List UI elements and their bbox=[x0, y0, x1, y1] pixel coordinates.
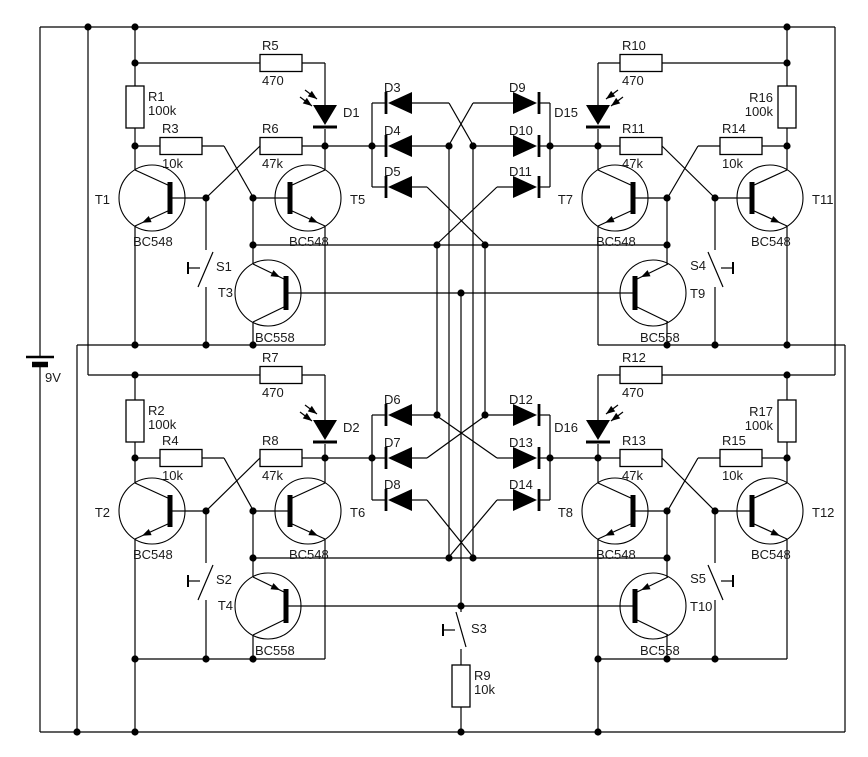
diode-label: D3 bbox=[384, 80, 401, 95]
switch-label: S4 bbox=[690, 258, 706, 273]
resistor bbox=[778, 400, 796, 442]
transistor-part-label: BC558 bbox=[640, 330, 680, 345]
junction-dot bbox=[663, 554, 670, 561]
junction-dot bbox=[546, 454, 553, 461]
junction-dot bbox=[249, 507, 256, 514]
junction-dot bbox=[321, 454, 328, 461]
junction-dot bbox=[131, 371, 138, 378]
junction-dot bbox=[445, 554, 452, 561]
junction-dot bbox=[73, 728, 80, 735]
transistor-part-label: BC548 bbox=[289, 234, 329, 249]
resistor-ref-label: R13 bbox=[622, 433, 646, 448]
junction-dot bbox=[481, 411, 488, 418]
diode-label: D8 bbox=[384, 477, 401, 492]
diode-label: D14 bbox=[509, 477, 533, 492]
junction-dot bbox=[594, 454, 601, 461]
junction-dot bbox=[594, 142, 601, 149]
resistor-ref-label: R11 bbox=[622, 121, 645, 136]
resistor-ref-label: R6 bbox=[262, 121, 279, 136]
transistor-ref-label: T9 bbox=[690, 286, 705, 301]
resistor-ref-label: R1 bbox=[148, 89, 165, 104]
resistor bbox=[260, 55, 302, 72]
resistor bbox=[260, 367, 302, 384]
junction-dot bbox=[202, 507, 209, 514]
transistor-ref-label: T12 bbox=[812, 505, 834, 520]
junction-dot bbox=[711, 507, 718, 514]
junction-dot bbox=[457, 728, 464, 735]
resistor-ref-label: R2 bbox=[148, 403, 165, 418]
junction-dot bbox=[663, 507, 670, 514]
diode-label: D12 bbox=[509, 392, 533, 407]
junction-dot bbox=[202, 655, 209, 662]
transistor-part-label: BC558 bbox=[640, 643, 680, 658]
junction-dot bbox=[131, 142, 138, 149]
resistor bbox=[720, 450, 762, 467]
diode-label: D4 bbox=[384, 123, 401, 138]
led-label: D16 bbox=[554, 420, 578, 435]
resistor-ref-label: R12 bbox=[622, 350, 646, 365]
transistor-ref-label: T6 bbox=[350, 505, 365, 520]
diode-label: D6 bbox=[384, 392, 401, 407]
junction-dot bbox=[783, 454, 790, 461]
resistor bbox=[452, 665, 470, 707]
junction-dot bbox=[131, 23, 138, 30]
resistor-value-label: 470 bbox=[622, 73, 644, 88]
resistor-value-label: 47k bbox=[262, 468, 283, 483]
resistor-value-label: 100k bbox=[745, 104, 774, 119]
resistor bbox=[778, 86, 796, 128]
junction-dot bbox=[783, 371, 790, 378]
transistor-ref-label: T2 bbox=[95, 505, 110, 520]
diode-label: D7 bbox=[384, 435, 401, 450]
junction-dot bbox=[663, 241, 670, 248]
battery-label: 9V bbox=[45, 370, 61, 385]
led-label: D1 bbox=[343, 105, 360, 120]
transistor-part-label: BC548 bbox=[751, 234, 791, 249]
resistor bbox=[620, 450, 662, 467]
junction-dot bbox=[433, 241, 440, 248]
junction-dot bbox=[711, 194, 718, 201]
switch-label: S5 bbox=[690, 571, 706, 586]
junction-dot bbox=[131, 728, 138, 735]
diode-label: D9 bbox=[509, 80, 526, 95]
resistor-ref-label: R10 bbox=[622, 38, 646, 53]
junction-dot bbox=[783, 341, 790, 348]
junction-dot bbox=[368, 142, 375, 149]
junction-dot bbox=[445, 142, 452, 149]
diode-label: D13 bbox=[509, 435, 533, 450]
transistor-part-label: BC558 bbox=[255, 330, 295, 345]
transistor-part-label: BC548 bbox=[596, 234, 636, 249]
junction-dot bbox=[249, 554, 256, 561]
junction-dot bbox=[783, 23, 790, 30]
junction-dot bbox=[249, 194, 256, 201]
resistor-value-label: 470 bbox=[262, 73, 284, 88]
junction-dot bbox=[711, 655, 718, 662]
junction-dot bbox=[368, 454, 375, 461]
resistor-value-label: 100k bbox=[745, 418, 774, 433]
switch-label: S1 bbox=[216, 259, 232, 274]
transistor-ref-label: T5 bbox=[350, 192, 365, 207]
junction-dot bbox=[457, 289, 464, 296]
resistor bbox=[260, 138, 302, 155]
transistor-ref-label: T1 bbox=[95, 192, 110, 207]
resistor bbox=[620, 55, 662, 72]
resistor-ref-label: R4 bbox=[162, 433, 179, 448]
resistor-ref-label: R3 bbox=[162, 121, 179, 136]
resistor-value-label: 10k bbox=[474, 682, 495, 697]
led-label: D15 bbox=[554, 105, 578, 120]
junction-dot bbox=[594, 728, 601, 735]
resistor-value-label: 47k bbox=[622, 468, 643, 483]
resistor-ref-label: R15 bbox=[722, 433, 746, 448]
resistor-value-label: 10k bbox=[722, 156, 743, 171]
resistor-ref-label: R8 bbox=[262, 433, 279, 448]
junction-dot bbox=[202, 194, 209, 201]
resistor-ref-label: R7 bbox=[262, 350, 279, 365]
resistor-value-label: 10k bbox=[162, 156, 183, 171]
resistor-value-label: 100k bbox=[148, 417, 177, 432]
transistor-part-label: BC558 bbox=[255, 643, 295, 658]
transistor-ref-label: T11 bbox=[812, 192, 833, 207]
switch-label: S2 bbox=[216, 572, 232, 587]
resistor-value-label: 100k bbox=[148, 103, 177, 118]
circuit-schematic: 9VR1100kR2100kR310kR410kR5470R647kR7470R… bbox=[0, 0, 868, 757]
diode-label: D10 bbox=[509, 123, 533, 138]
junction-dot bbox=[131, 454, 138, 461]
junction-dot bbox=[469, 554, 476, 561]
transistor-part-label: BC548 bbox=[751, 547, 791, 562]
junction-dot bbox=[321, 142, 328, 149]
diode-label: D5 bbox=[384, 164, 401, 179]
resistor bbox=[160, 138, 202, 155]
resistor-value-label: 10k bbox=[722, 468, 743, 483]
transistor-part-label: BC548 bbox=[133, 547, 173, 562]
junction-dot bbox=[663, 194, 670, 201]
junction-dot bbox=[594, 655, 601, 662]
junction-dot bbox=[84, 23, 91, 30]
junction-dot bbox=[546, 142, 553, 149]
resistor bbox=[620, 138, 662, 155]
junction-dot bbox=[249, 241, 256, 248]
resistor-ref-label: R14 bbox=[722, 121, 746, 136]
junction-dot bbox=[481, 241, 488, 248]
junction-dot bbox=[131, 341, 138, 348]
resistor bbox=[260, 450, 302, 467]
transistor-ref-label: T3 bbox=[218, 285, 233, 300]
resistor-ref-label: R9 bbox=[474, 668, 491, 683]
junction-dot bbox=[433, 411, 440, 418]
transistor-ref-label: T7 bbox=[558, 192, 573, 207]
diode-label: D11 bbox=[509, 164, 532, 179]
resistor-value-label: 47k bbox=[622, 156, 643, 171]
junction-dot bbox=[711, 341, 718, 348]
led-label: D2 bbox=[343, 420, 360, 435]
junction-dot bbox=[783, 142, 790, 149]
transistor-part-label: BC548 bbox=[289, 547, 329, 562]
resistor bbox=[620, 367, 662, 384]
junction-dot bbox=[202, 341, 209, 348]
junction-dot bbox=[469, 142, 476, 149]
resistor-ref-label: R17 bbox=[749, 404, 773, 419]
junction-dot bbox=[783, 59, 790, 66]
resistor-value-label: 470 bbox=[262, 385, 284, 400]
transistor-ref-label: T4 bbox=[218, 598, 233, 613]
resistor-value-label: 470 bbox=[622, 385, 644, 400]
resistor bbox=[720, 138, 762, 155]
transistor-ref-label: T8 bbox=[558, 505, 573, 520]
resistor-value-label: 47k bbox=[262, 156, 283, 171]
resistor-ref-label: R5 bbox=[262, 38, 279, 53]
resistor bbox=[126, 400, 144, 442]
resistor bbox=[126, 86, 144, 128]
transistor-part-label: BC548 bbox=[133, 234, 173, 249]
transistor-part-label: BC548 bbox=[596, 547, 636, 562]
junction-dot bbox=[457, 602, 464, 609]
switch-label: S3 bbox=[471, 621, 487, 636]
transistor-ref-label: T10 bbox=[690, 599, 712, 614]
resistor bbox=[160, 450, 202, 467]
junction-dot bbox=[131, 655, 138, 662]
junction-dot bbox=[131, 59, 138, 66]
schematic-page: 9VR1100kR2100kR310kR410kR5470R647kR7470R… bbox=[0, 0, 868, 757]
resistor-ref-label: R16 bbox=[749, 90, 773, 105]
